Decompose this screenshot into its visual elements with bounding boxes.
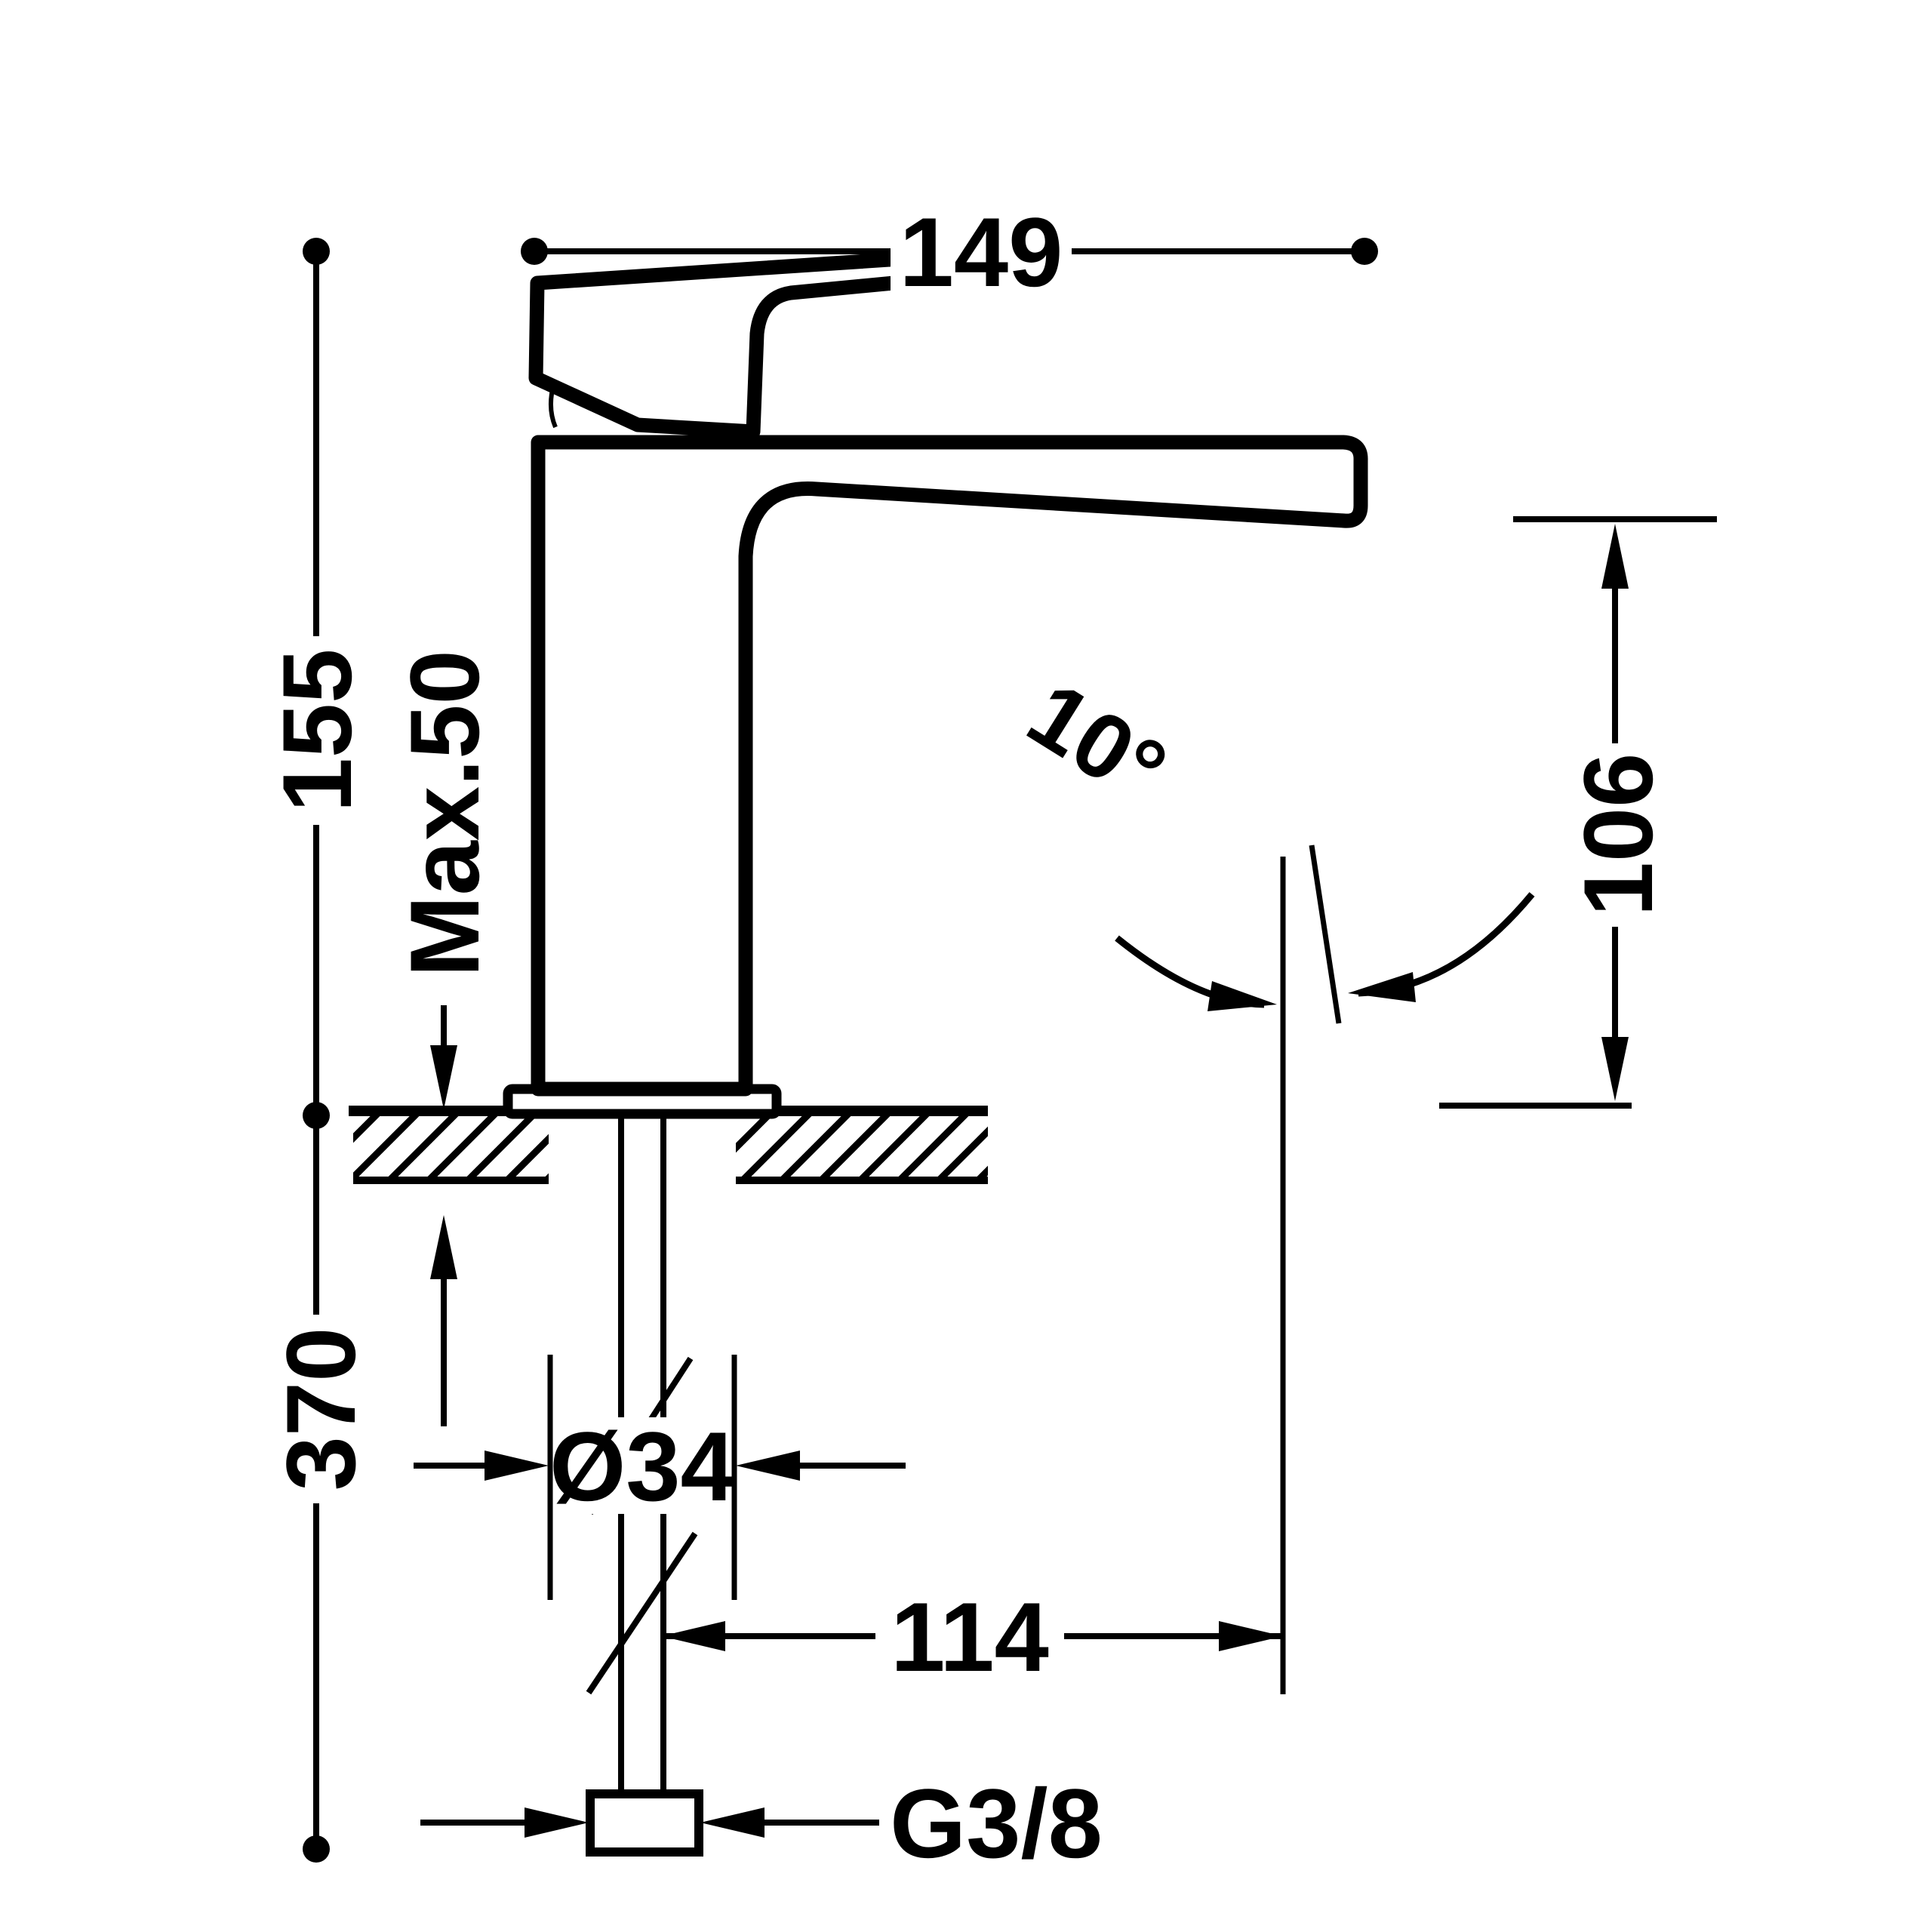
faucet xyxy=(508,250,1361,1114)
dim-d34: Ø34 xyxy=(414,1355,906,1600)
deck-hatch-right xyxy=(736,1115,988,1179)
dim-106-up-arrow xyxy=(1601,524,1629,589)
angle-arrow-left xyxy=(1207,981,1277,1011)
dim-g38-label: G3/8 xyxy=(890,1768,1103,1878)
dim-max50-down-arrow xyxy=(430,1045,457,1109)
pipe-break-slash-lower xyxy=(589,1534,695,1693)
spout-axis-tilted-line xyxy=(1312,845,1339,1023)
dim-114-arrow-left xyxy=(661,1621,725,1651)
dim-d34-arrow-left xyxy=(485,1451,549,1481)
dim-106-down-arrow xyxy=(1601,1037,1629,1101)
dim-106: 106 xyxy=(1439,519,1717,1106)
dim-max50: Max.50 xyxy=(389,650,500,1426)
inlet-connector xyxy=(590,1794,699,1852)
dim-155: 155 xyxy=(262,238,372,1129)
dim-155-label: 155 xyxy=(262,649,372,813)
dim-114: 114 xyxy=(661,1582,1283,1692)
dim-370: 370 xyxy=(266,1118,376,1863)
dim-max50-label: Max.50 xyxy=(389,650,500,977)
dim-114-label: 114 xyxy=(891,1582,1049,1692)
dim-114-arrow-right xyxy=(1219,1621,1283,1651)
dim-106-label: 106 xyxy=(1563,753,1673,917)
dim-g38-arrow-left xyxy=(525,1807,589,1838)
dim-370-dot-bottom xyxy=(303,1835,330,1863)
angle-arrow-right xyxy=(1348,972,1416,1002)
dim-max50-up-arrow xyxy=(430,1215,457,1279)
dim-149-label: 149 xyxy=(900,197,1063,307)
dim-g38-arrow-right xyxy=(700,1807,764,1838)
angle-arc-right xyxy=(1358,894,1532,993)
technical-drawing-canvas: 149 155 Max.50 370 Ø34 xyxy=(0,0,1932,1932)
dim-149-dot-left xyxy=(521,238,548,265)
dim-370-label: 370 xyxy=(266,1327,376,1491)
deck-section xyxy=(349,1111,988,1180)
dim-155-dot-top xyxy=(303,238,330,265)
dim-g38: G3/8 xyxy=(420,1768,1103,1878)
dim-d34-arrow-right xyxy=(736,1451,800,1481)
dim-149-dot-right xyxy=(1351,238,1378,265)
drawing-page: 149 155 Max.50 370 Ø34 xyxy=(0,0,1932,1932)
dim-d34-label: Ø34 xyxy=(549,1411,735,1521)
deck-hatch-left xyxy=(353,1115,549,1179)
dim-angle-10: 10° xyxy=(1011,662,1532,1694)
dim-angle-label: 10° xyxy=(1011,662,1184,823)
